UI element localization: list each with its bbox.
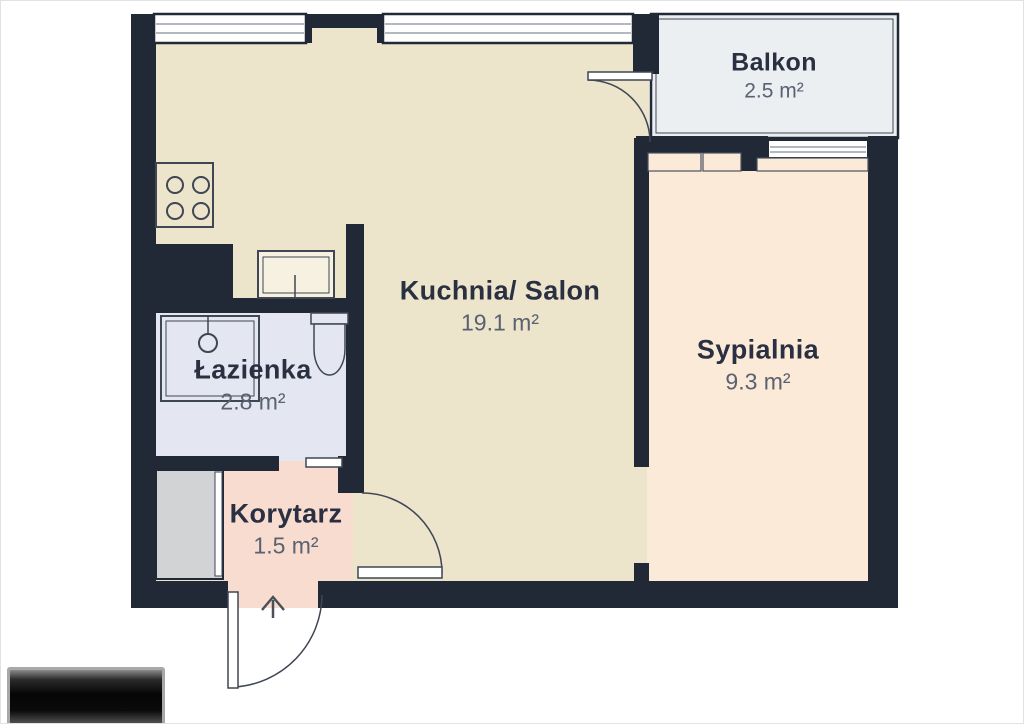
bedroom-closet-section — [703, 153, 741, 171]
balcony-door-leaf — [588, 72, 652, 80]
kitchen-door-leaf — [358, 567, 442, 578]
wall-balcony-pier — [633, 14, 659, 74]
wall-bedroom-top-bit — [757, 136, 768, 158]
bedroom-floor — [647, 141, 883, 596]
wall-bedroom-left-stub — [634, 563, 649, 581]
window-bedroom-balcony — [768, 140, 868, 158]
toilet-tank — [311, 313, 348, 324]
wall-top-pier-niche — [312, 28, 377, 43]
toilet-bowl — [314, 324, 345, 375]
wall-left — [131, 14, 156, 608]
entrance-door-leaf — [228, 592, 238, 688]
wall-bedroom-top — [636, 136, 741, 153]
floor-plan-canvas: Kuchnia/ Salon 19.1 m² Sypialnia 9.3 m² … — [0, 0, 1024, 724]
wall-bottom-right — [318, 581, 898, 608]
bathroom-sliding-door — [306, 458, 342, 467]
stove — [156, 163, 213, 227]
wall-bathroom-bottom — [156, 456, 279, 471]
bedroom-window-sill — [757, 158, 868, 171]
wall-bathroom-right — [346, 224, 364, 493]
wall-right — [868, 136, 898, 608]
bedroom-closet-section — [648, 153, 701, 171]
balcony-floor — [651, 14, 898, 138]
wardrobe — [156, 469, 223, 579]
wall-bedroom-top-pier — [741, 136, 757, 171]
redacted-logo — [7, 667, 165, 724]
window-top-center — [383, 14, 633, 43]
entrance-door-swing-arc — [234, 595, 322, 687]
wall-bedroom-left — [634, 138, 649, 467]
floor-plan-drawing — [1, 1, 1024, 724]
wall-bathroom-shaft — [154, 244, 233, 313]
wardrobe-sliding-door — [215, 472, 222, 576]
kitchen-sink — [258, 251, 334, 298]
window-top-left — [154, 14, 306, 43]
wall-bathroom-top — [233, 298, 346, 313]
wall-bottom-left — [131, 581, 228, 608]
sink-outer — [258, 251, 334, 298]
